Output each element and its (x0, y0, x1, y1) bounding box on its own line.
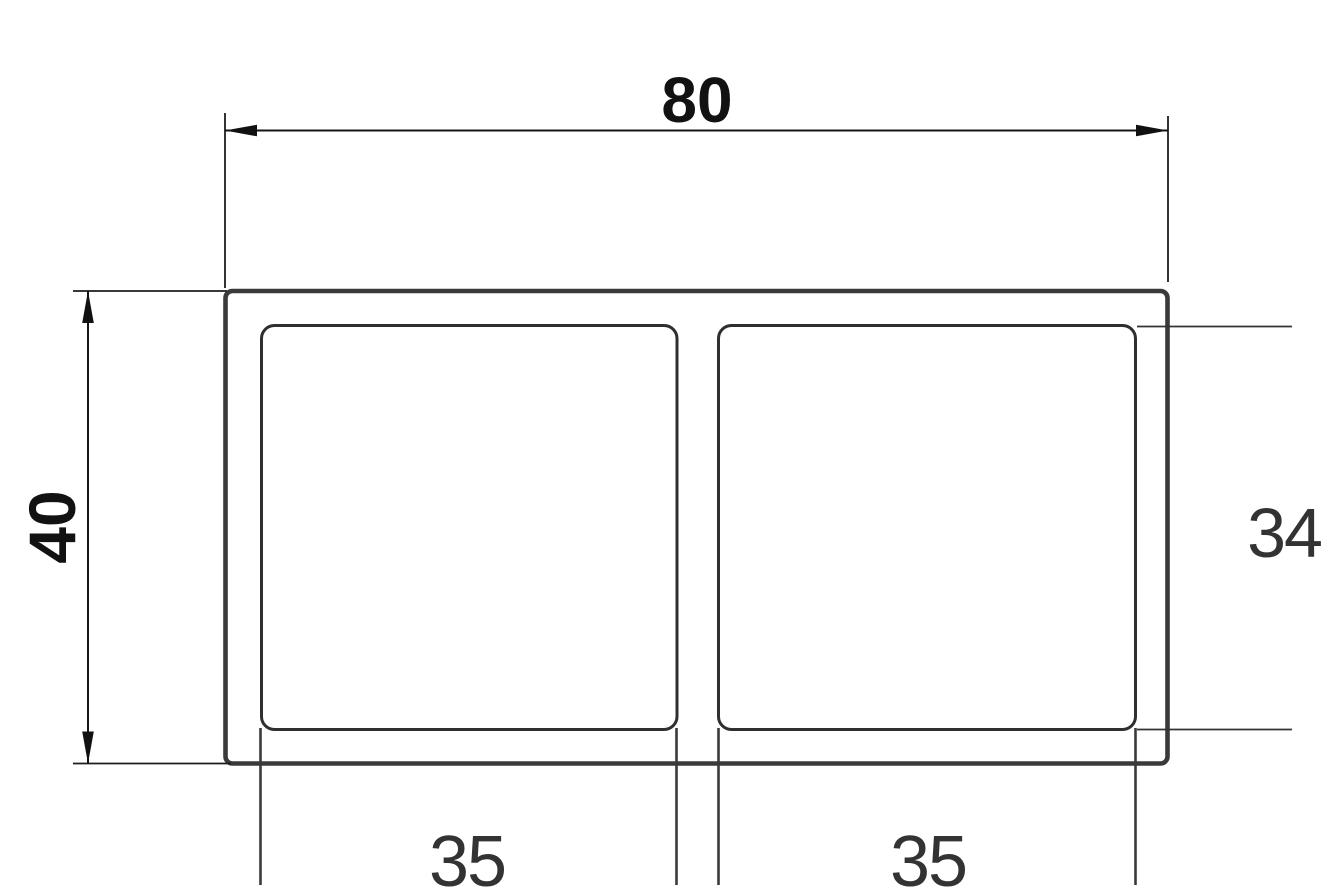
width-dim-arrowhead-left (225, 125, 257, 137)
tube-right-cavity (719, 326, 1136, 730)
height-dim-arrowhead-top (82, 291, 94, 323)
height-dimension-label: 40 (15, 490, 89, 563)
cavity-height-dimension-label: 34 (1247, 494, 1321, 572)
tube-left-cavity (262, 326, 678, 730)
left-cavity-width-label: 35 (429, 822, 505, 890)
right-cavity-width-label: 35 (890, 822, 966, 890)
drawing-canvas: 80 40 34 35 35 (0, 0, 1324, 890)
width-dim-arrowhead-right (1136, 125, 1168, 137)
width-dimension-label: 80 (661, 64, 732, 136)
height-dim-arrowhead-bottom (82, 732, 94, 764)
technical-drawing: 80 40 34 35 35 (0, 0, 1324, 890)
tube-outer-profile (226, 291, 1168, 764)
